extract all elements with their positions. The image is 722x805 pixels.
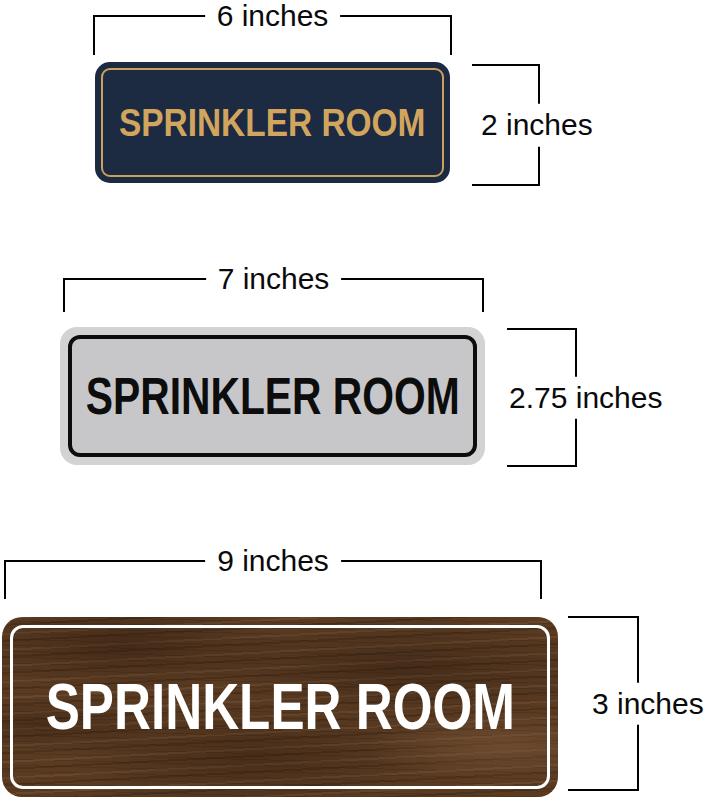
sign-plate-silver: SPRINKLER ROOM xyxy=(60,327,485,465)
width-dimension-label: 7 inches xyxy=(206,262,342,297)
sign-inner-border: SPRINKLER ROOM xyxy=(68,335,477,457)
sign-text: SPRINKLER ROOM xyxy=(119,104,426,142)
height-dimension-label: 2 inches xyxy=(473,104,601,147)
sign-plate-navy: SPRINKLER ROOM xyxy=(95,62,450,183)
sign-plate-wood: SPRINKLER ROOM xyxy=(2,617,558,797)
width-dimension-bracket-6in: 6 inches xyxy=(93,15,452,55)
sign-text: SPRINKLER ROOM xyxy=(45,675,514,739)
sign-text: SPRINKLER ROOM xyxy=(85,371,459,422)
width-dimension-bracket-7in: 7 inches xyxy=(63,278,484,312)
width-dimension-label: 9 inches xyxy=(205,544,341,579)
height-dimension-bracket-3in: 3 inches xyxy=(568,616,639,791)
width-dimension-label: 6 inches xyxy=(205,0,341,33)
sign-inner-border: SPRINKLER ROOM xyxy=(101,68,444,177)
height-dimension-label: 2.75 inches xyxy=(501,376,670,419)
height-dimension-bracket-2in: 2 inches xyxy=(472,64,540,186)
product-image: 6 inches SPRINKLER ROOM 2 inches 7 inche… xyxy=(0,0,722,805)
width-dimension-bracket-9in: 9 inches xyxy=(4,560,542,599)
sign-inner-border: SPRINKLER ROOM xyxy=(10,625,550,789)
height-dimension-label: 3 inches xyxy=(584,682,712,725)
height-dimension-bracket-2-75in: 2.75 inches xyxy=(507,328,577,467)
